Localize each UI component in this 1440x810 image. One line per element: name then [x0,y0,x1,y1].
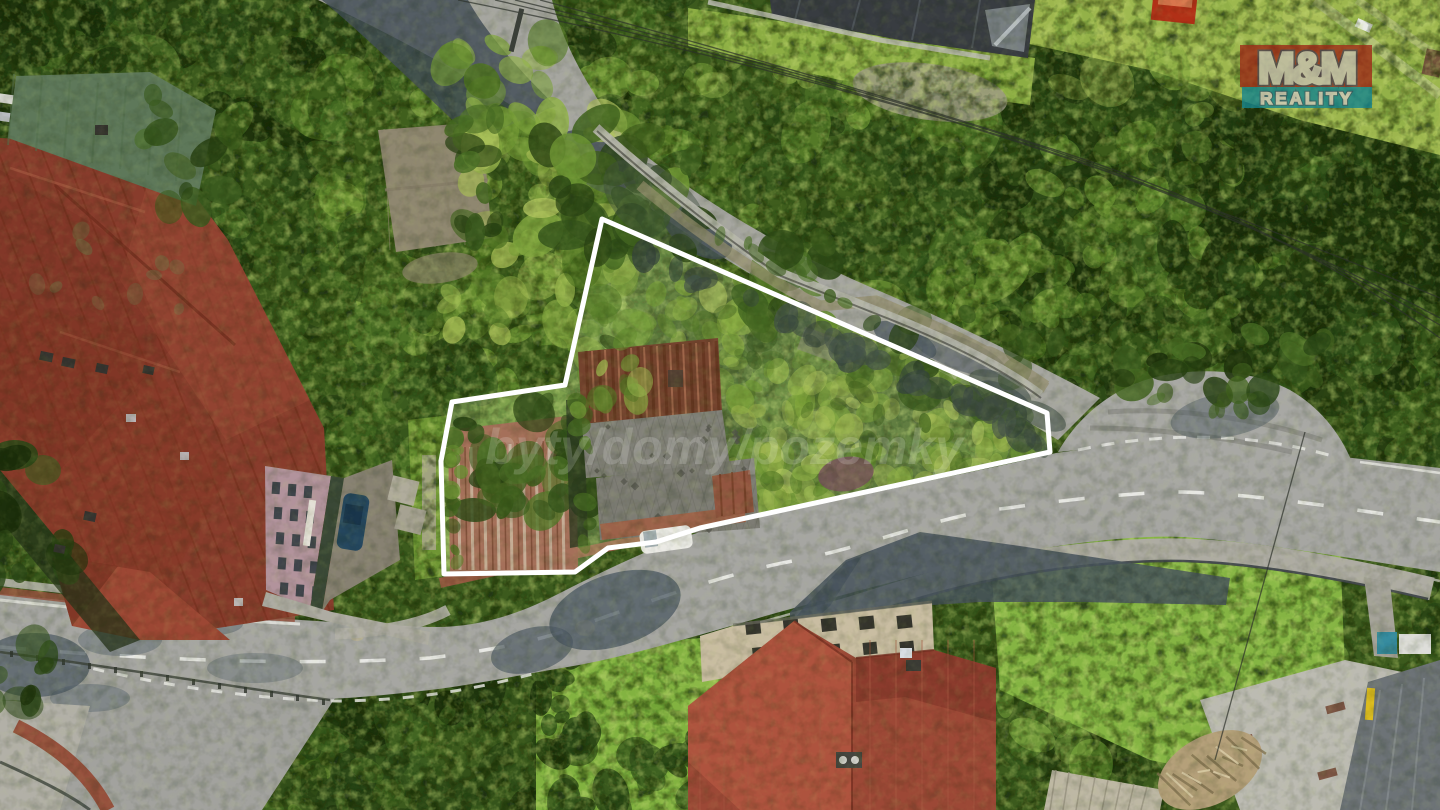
svg-text:byty/domy/pozemky: byty/domy/pozemky [485,419,965,475]
svg-text:REALITY: REALITY [1260,89,1354,108]
svg-text:M&M: M&M [1258,44,1354,93]
